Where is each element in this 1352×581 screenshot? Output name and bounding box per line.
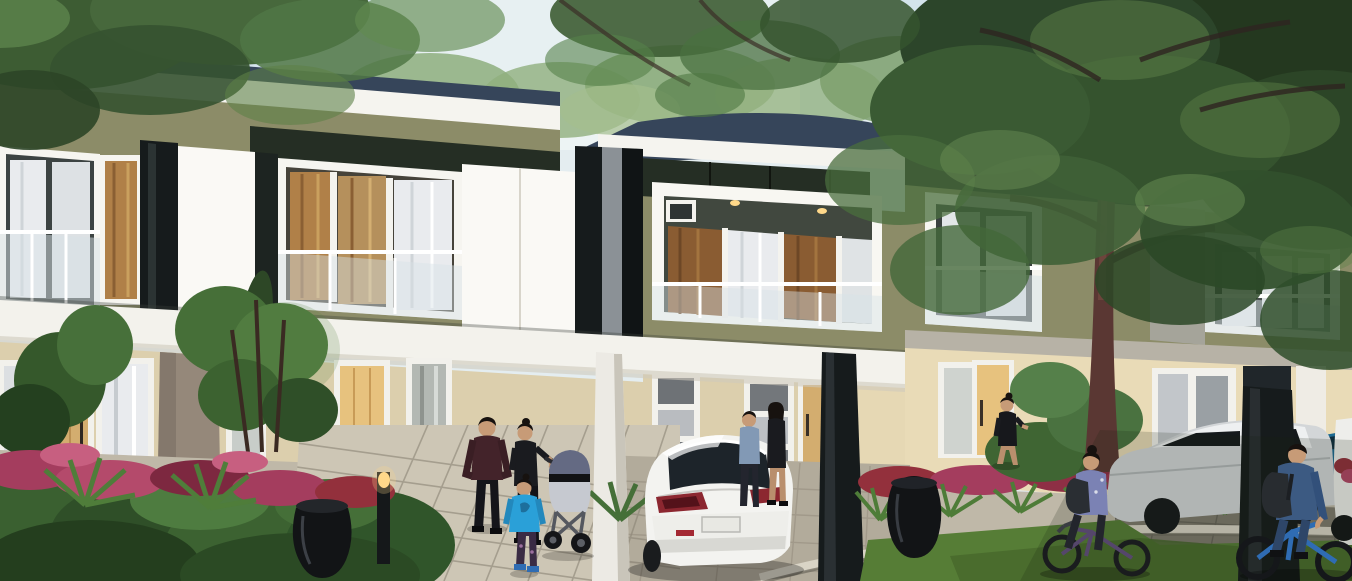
window-left-b: [100, 155, 142, 305]
planter-urn-right: [887, 476, 941, 558]
architectural-render: [0, 0, 1352, 581]
pillar-highlight: [824, 352, 836, 581]
window-left-a: [0, 146, 100, 312]
window-left-c: [278, 158, 462, 320]
